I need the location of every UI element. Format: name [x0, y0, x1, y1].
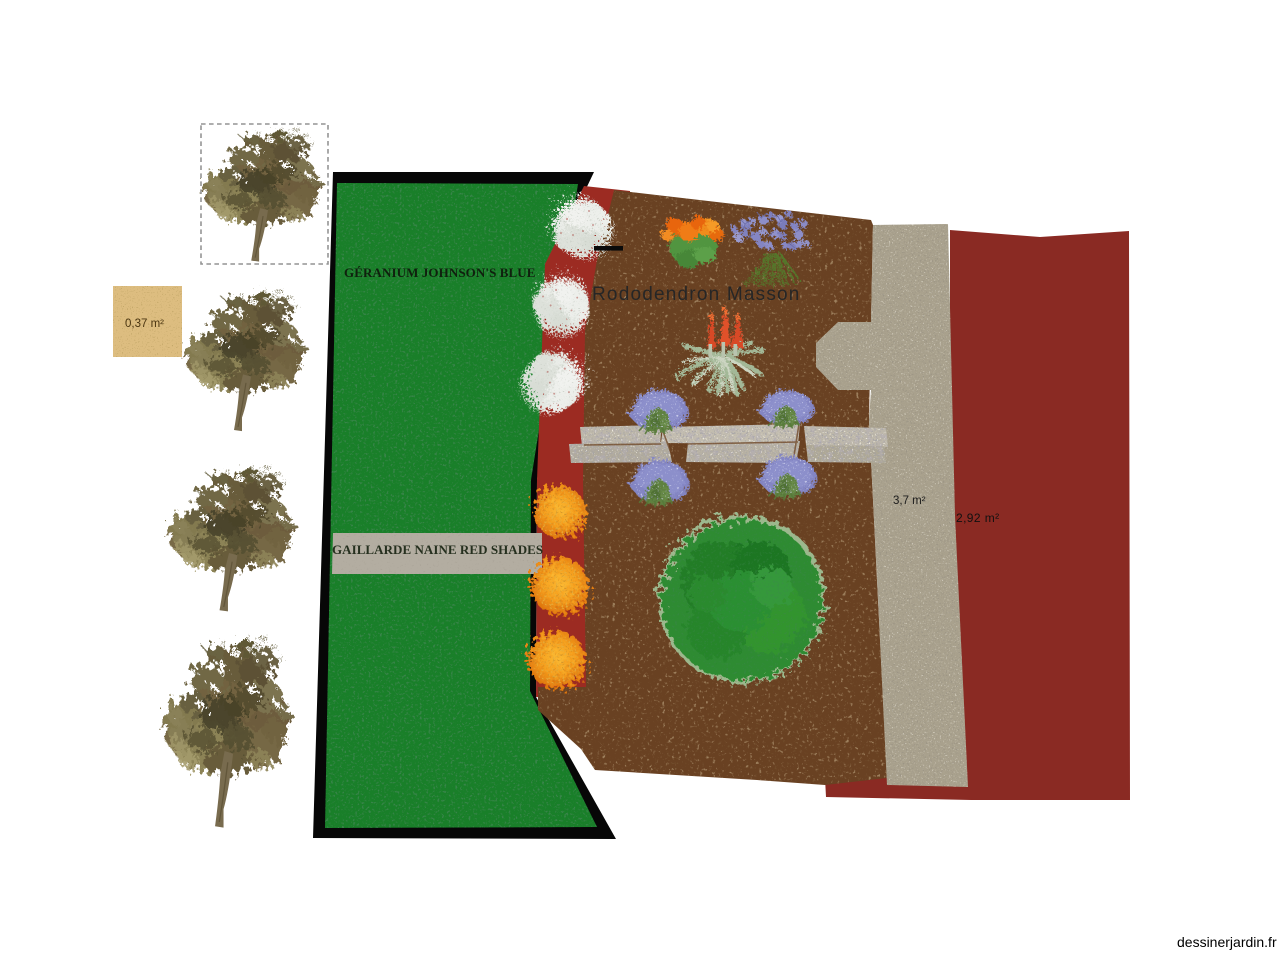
svg-text:Rododendron Masson: Rododendron Masson [592, 284, 801, 305]
svg-text:2,92 m²: 2,92 m² [956, 511, 999, 525]
svg-text:GAILLARDE NAINE RED SHADES: GAILLARDE NAINE RED SHADES [332, 542, 543, 557]
svg-text:0,37 m²: 0,37 m² [125, 318, 164, 330]
svg-text:GÉRANIUM JOHNSON'S BLUE: GÉRANIUM JOHNSON'S BLUE [344, 265, 536, 280]
svg-text:3,7 m²: 3,7 m² [893, 495, 926, 507]
svg-text:dessinerjardin.fr: dessinerjardin.fr [1177, 934, 1277, 950]
